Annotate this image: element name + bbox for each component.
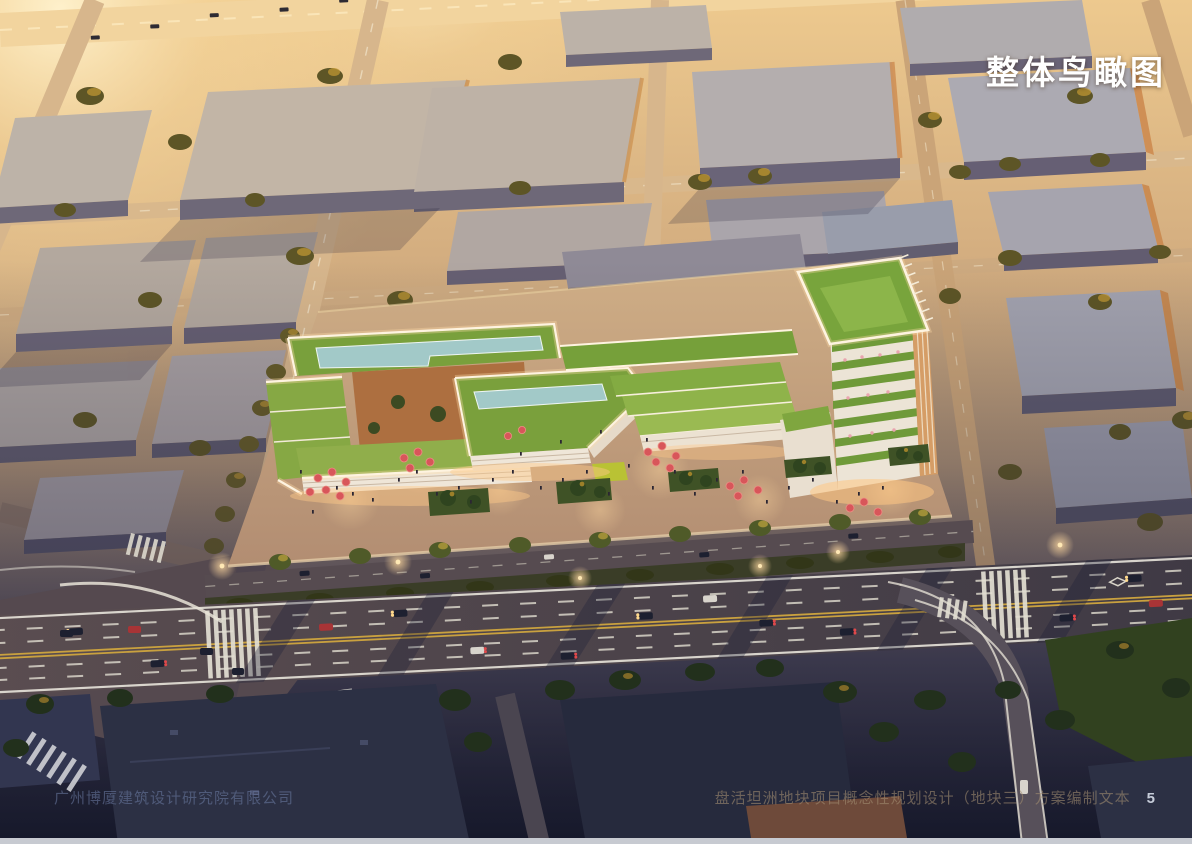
footer-company-watermark: 广州博厦建筑设计研究院有限公司 (54, 787, 294, 808)
page-number: 5 (1147, 790, 1156, 807)
aerial-render-image: . (0, 0, 1192, 844)
footer-project-watermark: 盘活坦洲地块项目概念性规划设计（地块三）方案编制文本5 (715, 787, 1156, 808)
page-title: 整体鸟瞰图 (986, 46, 1166, 94)
slide-page: . (0, 0, 1192, 844)
footer-project-title: 盘活坦洲地块项目概念性规划设计（地块三）方案编制文本 (715, 790, 1131, 807)
